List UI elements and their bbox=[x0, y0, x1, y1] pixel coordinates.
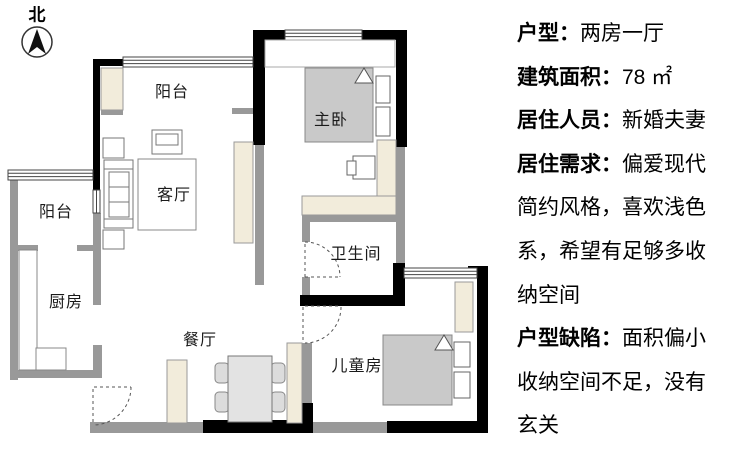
room-label-balcony-left: 阳台 bbox=[39, 198, 73, 222]
dining-set bbox=[215, 356, 285, 422]
info-line-needs-3: 系，希望有足够多收 bbox=[517, 230, 745, 274]
kids-bed bbox=[383, 335, 470, 405]
room-label-master: 主卧 bbox=[314, 106, 348, 130]
room-label-kitchen: 厨房 bbox=[49, 288, 83, 312]
compass-north-label: 北 bbox=[29, 1, 46, 26]
room-label-dining: 餐厅 bbox=[183, 326, 217, 350]
room-label-kids: 儿童房 bbox=[331, 352, 382, 376]
room-label-bathroom: 卫生间 bbox=[330, 240, 381, 264]
info-line-defects-3: 玄关 bbox=[517, 404, 745, 448]
info-line-huxing: 户型：两房一厅 bbox=[517, 12, 745, 56]
floorplan-figure: 北 阳台 主卧 客厅 阳台 厨房 卫生间 餐厅 儿童房 bbox=[0, 0, 500, 456]
info-line-defects-1: 户型缺陷：面积偏小 bbox=[517, 317, 745, 361]
info-line-area: 建筑面积：78 ㎡ bbox=[517, 56, 745, 100]
info-line-needs-1: 居住需求：偏爱现代 bbox=[517, 143, 745, 187]
room-label-balcony-top: 阳台 bbox=[155, 78, 189, 102]
compass-icon bbox=[22, 27, 52, 57]
info-line-needs-2: 简约风格，喜欢浅色 bbox=[517, 186, 745, 230]
info-line-residents: 居住人员：新婚夫妻 bbox=[517, 99, 745, 143]
floorplan-drawing bbox=[0, 0, 500, 456]
room-label-living: 客厅 bbox=[157, 181, 191, 205]
info-line-needs-4: 纳空间 bbox=[517, 274, 745, 318]
info-panel: 户型：两房一厅 建筑面积：78 ㎡ 居住人员：新婚夫妻 居住需求：偏爱现代 简约… bbox=[517, 12, 745, 448]
info-line-defects-2: 收纳空间不足，没有 bbox=[517, 361, 745, 405]
walls-gray bbox=[10, 108, 405, 433]
